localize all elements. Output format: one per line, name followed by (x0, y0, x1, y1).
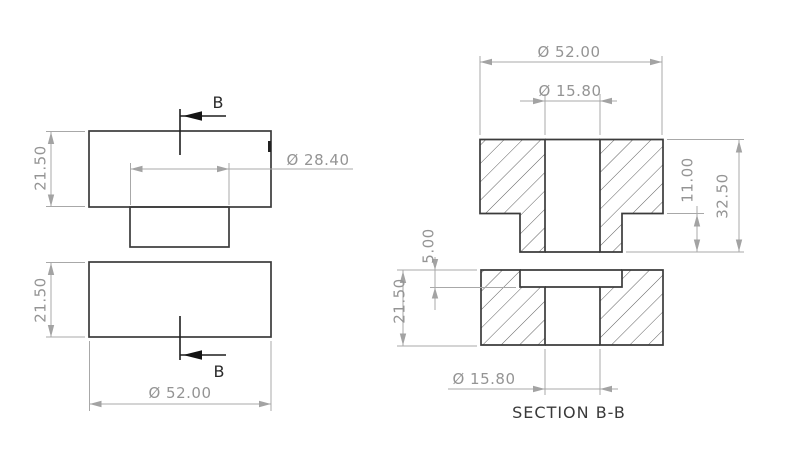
section-cut-marker-top: B (180, 93, 226, 155)
dim-text-front-height-top: 21.50 (31, 145, 49, 190)
cut-arrowhead-icon-top (183, 111, 202, 120)
dim-text-section-body-height: 21.50 (390, 278, 408, 323)
engineering-drawing-canvas: B B 21.50 21.50 (0, 0, 800, 452)
dim-text-recess-depth: 5.00 (419, 228, 437, 263)
upper-section-left-solid (480, 140, 545, 253)
dim-boss-diameter: Ø 28.40 (131, 151, 354, 205)
upper-part-boss-outline (130, 207, 229, 247)
dim-text-section-outer-diameter: Ø 52.00 (537, 43, 600, 61)
dim-hole-diameter-bottom: Ø 15.80 (448, 349, 618, 395)
dim-text-hole-diameter-top: Ø 15.80 (538, 82, 601, 100)
dim-text-front-height-bottom: 21.50 (31, 277, 49, 322)
dim-text-hole-diameter-bottom: Ø 15.80 (452, 370, 515, 388)
section-view-title: SECTION B-B (512, 403, 626, 422)
cut-label-top: B (213, 93, 224, 112)
dim-front-height-bottom: 21.50 (31, 263, 85, 338)
section-cut-marker-bottom: B (180, 316, 226, 381)
lower-section-left-solid (481, 270, 545, 345)
dim-section-body-height: 21.50 (390, 270, 477, 346)
front-view: B B 21.50 21.50 (31, 93, 353, 411)
cut-label-bottom: B (214, 362, 225, 381)
dim-boss-height: 11.00 (667, 157, 704, 251)
dim-text-boss-height: 11.00 (678, 157, 696, 202)
dim-text-front-outer-diameter: Ø 52.00 (148, 384, 211, 402)
upper-section-right-solid (600, 140, 663, 253)
drawing-svg: B B 21.50 21.50 (0, 0, 800, 452)
dim-front-height-top: 21.50 (31, 132, 85, 207)
lower-section-right-solid (600, 270, 663, 345)
cut-arrowhead-icon-bottom (183, 350, 202, 359)
dim-text-boss-diameter: Ø 28.40 (286, 151, 349, 169)
dim-hole-diameter-top: Ø 15.80 (520, 82, 617, 135)
dim-text-total-height: 32.50 (713, 173, 731, 218)
section-view: Ø 52.00 Ø 15.80 11.00 32.50 (390, 43, 744, 422)
